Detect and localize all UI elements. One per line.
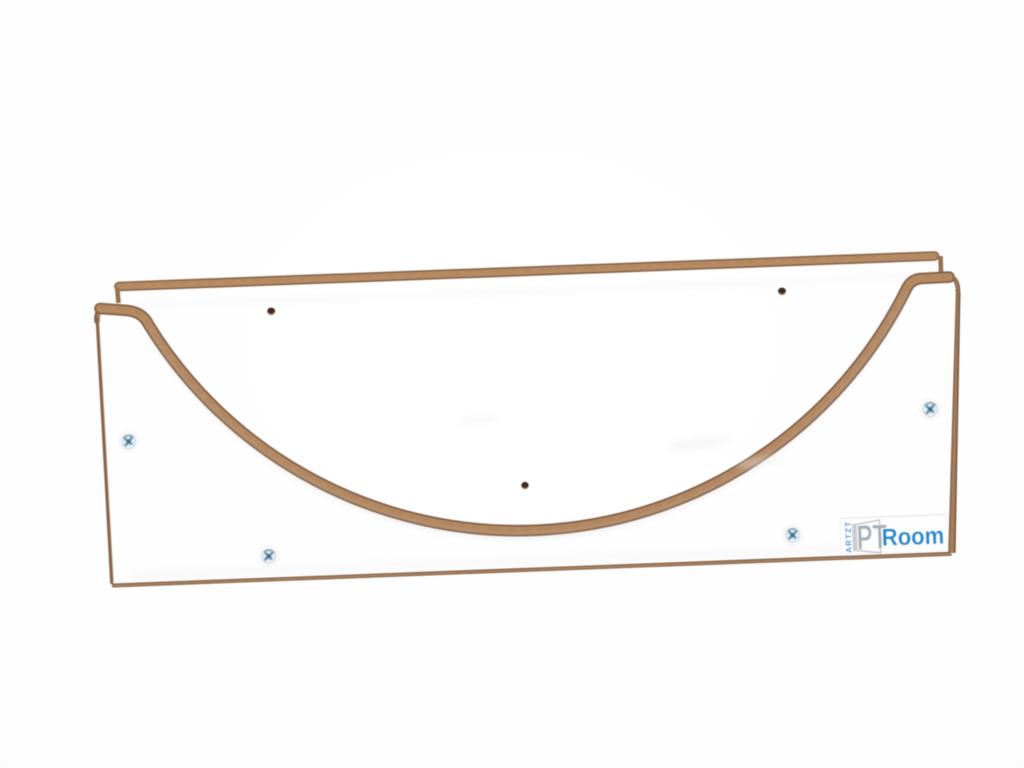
svg-text:Room: Room: [881, 522, 944, 551]
